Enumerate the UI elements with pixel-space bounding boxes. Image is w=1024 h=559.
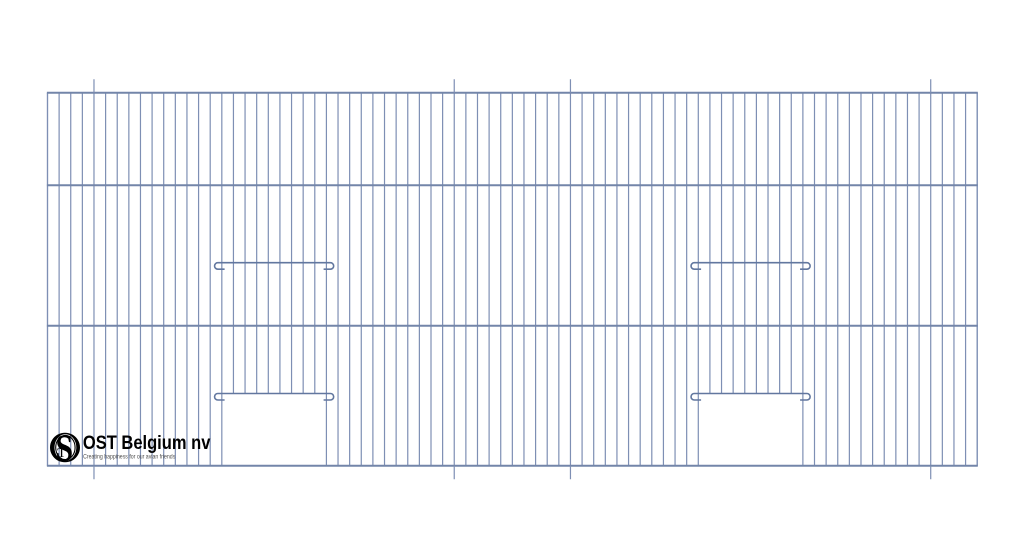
svg-text:Creating happiness for our avi: Creating happiness for our avian friends (83, 454, 176, 461)
svg-text:OST Belgium nv: OST Belgium nv (83, 433, 211, 454)
svg-text:T: T (57, 446, 66, 460)
